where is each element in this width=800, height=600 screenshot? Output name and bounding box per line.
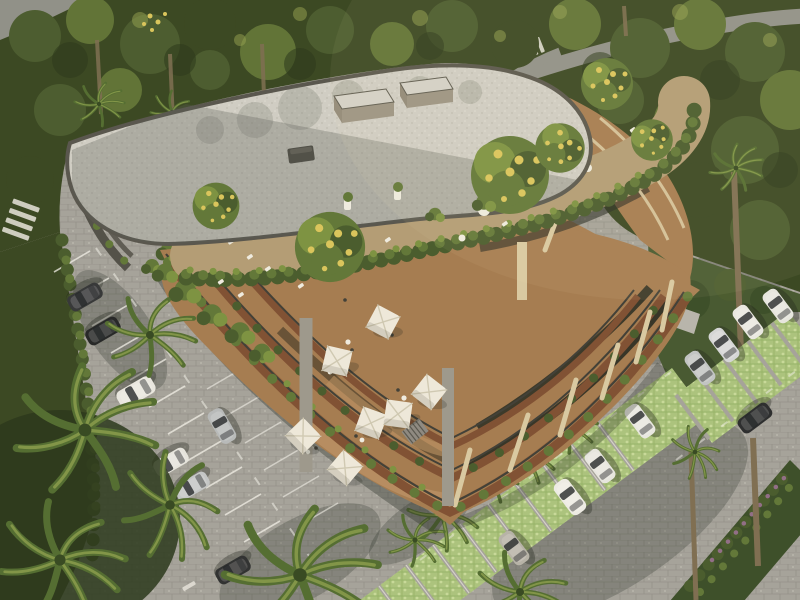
aerial-render-stage	[0, 0, 800, 600]
color-grade-overlay	[0, 0, 800, 600]
aerial-render	[0, 0, 800, 600]
